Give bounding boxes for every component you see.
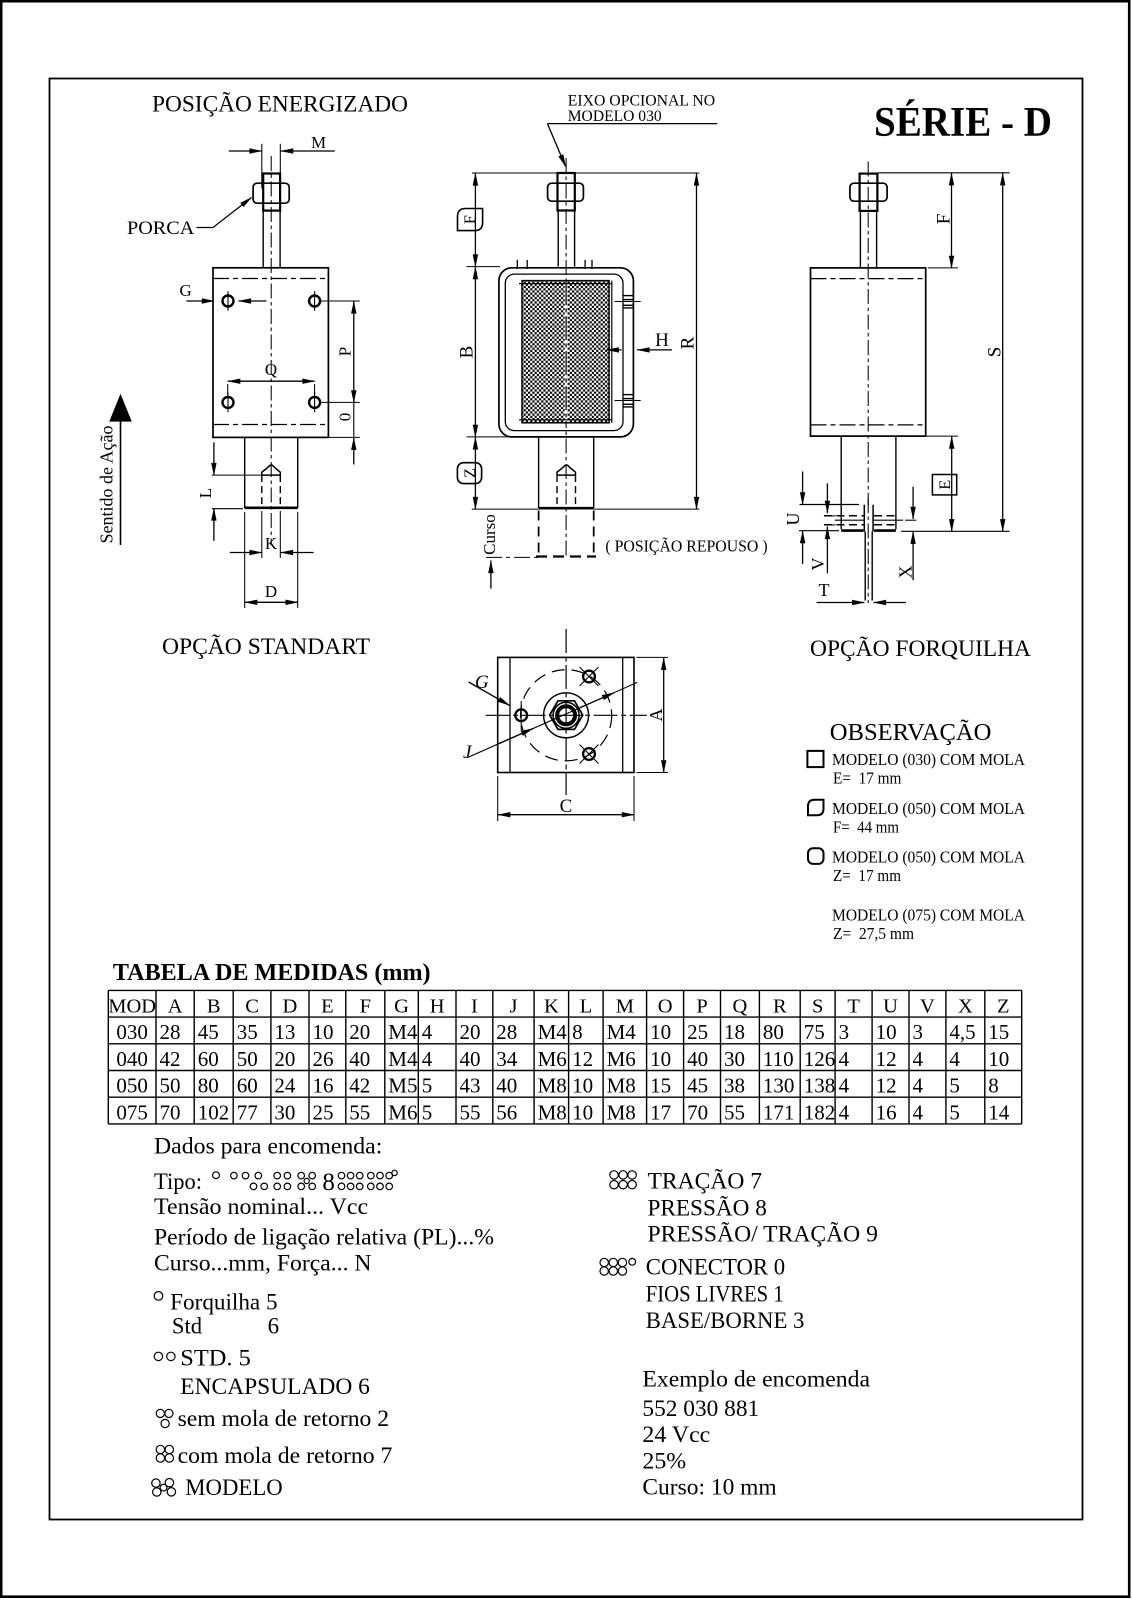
svg-text:12: 12	[572, 1047, 593, 1071]
svg-text:16: 16	[876, 1100, 897, 1124]
svg-text:34: 34	[496, 1047, 518, 1071]
svg-text:POSIÇÃO ENERGIZADO: POSIÇÃO ENERGIZADO	[152, 92, 408, 117]
svg-text:Sentido de Ação: Sentido de Ação	[97, 426, 117, 544]
svg-text:M8: M8	[607, 1100, 636, 1124]
svg-text:26: 26	[313, 1047, 334, 1071]
svg-text:X: X	[958, 995, 973, 1017]
svg-text:56: 56	[496, 1100, 517, 1124]
svg-text:L: L	[196, 488, 215, 498]
svg-text:16: 16	[313, 1074, 334, 1098]
svg-text:M6: M6	[538, 1047, 567, 1071]
svg-text:10: 10	[650, 1020, 671, 1044]
svg-text:4: 4	[913, 1100, 924, 1124]
svg-text:sem mola de retorno 2: sem mola de retorno 2	[178, 1406, 390, 1431]
svg-text:43: 43	[460, 1074, 481, 1098]
svg-text:K: K	[265, 534, 278, 553]
svg-text:M: M	[616, 995, 634, 1017]
svg-text:45: 45	[198, 1020, 219, 1044]
svg-text:38: 38	[724, 1074, 745, 1098]
svg-text:50: 50	[237, 1047, 258, 1071]
svg-text:10: 10	[572, 1074, 593, 1098]
svg-text:3: 3	[913, 1020, 924, 1044]
svg-text:25: 25	[313, 1100, 334, 1124]
svg-text:B: B	[456, 346, 477, 359]
svg-text:40: 40	[687, 1047, 708, 1071]
svg-text:30: 30	[274, 1100, 295, 1124]
svg-text:FIOS LIVRES 1: FIOS LIVRES 1	[646, 1281, 784, 1306]
svg-text:com mola de retorno 7: com mola de retorno 7	[178, 1443, 393, 1468]
svg-text:4: 4	[839, 1074, 850, 1098]
svg-text:F= 44 mm: F= 44 mm	[833, 817, 899, 836]
svg-text:75: 75	[804, 1020, 825, 1044]
svg-text:24: 24	[274, 1074, 296, 1098]
svg-text:MODELO: MODELO	[185, 1475, 282, 1500]
svg-text:4: 4	[422, 1047, 433, 1071]
svg-text:M6: M6	[607, 1047, 636, 1071]
svg-text:4: 4	[913, 1074, 924, 1098]
svg-text:70: 70	[160, 1100, 181, 1124]
svg-text:Q: Q	[733, 995, 748, 1017]
svg-text:B: B	[207, 995, 221, 1017]
svg-text:OPÇÃO STANDART: OPÇÃO STANDART	[162, 634, 370, 659]
svg-text:D: D	[265, 582, 277, 601]
svg-text:M4: M4	[538, 1020, 568, 1044]
svg-text:14: 14	[988, 1100, 1010, 1124]
svg-text:35: 35	[237, 1020, 258, 1044]
svg-text:13: 13	[274, 1020, 295, 1044]
svg-text:V: V	[920, 995, 935, 1017]
svg-text:OPÇÃO FORQUILHA: OPÇÃO FORQUILHA	[810, 636, 1031, 661]
svg-text:R: R	[773, 995, 787, 1017]
svg-text:H: H	[430, 995, 445, 1017]
svg-text:TRAÇÃO 7: TRAÇÃO 7	[648, 1168, 763, 1193]
svg-text:Dados para encomenda:: Dados para encomenda:	[154, 1134, 382, 1159]
svg-text:CONECTOR 0: CONECTOR 0	[646, 1255, 785, 1280]
svg-text:F: F	[462, 215, 479, 224]
svg-text:F: F	[360, 995, 371, 1017]
svg-text:040: 040	[116, 1047, 148, 1071]
svg-text:MODELO (050) COM MOLA: MODELO (050) COM MOLA	[832, 847, 1026, 866]
svg-text:40: 40	[349, 1047, 370, 1071]
svg-text:MODELO (030) COM MOLA: MODELO (030) COM MOLA	[832, 750, 1026, 769]
svg-text:H: H	[655, 330, 669, 351]
svg-text:M6: M6	[388, 1100, 417, 1124]
svg-text:K: K	[544, 995, 559, 1017]
svg-text:SÉRIE - D: SÉRIE - D	[874, 99, 1052, 146]
svg-text:R: R	[677, 336, 698, 349]
svg-text:5: 5	[422, 1100, 433, 1124]
svg-text:77: 77	[237, 1100, 258, 1124]
svg-text:ENCAPSULADO 6: ENCAPSULADO 6	[180, 1374, 370, 1399]
svg-text:55: 55	[460, 1100, 481, 1124]
svg-text:PORCA: PORCA	[127, 218, 195, 239]
svg-text:E: E	[937, 480, 954, 490]
svg-text:4: 4	[839, 1100, 850, 1124]
svg-text:EIXO OPCIONAL NO: EIXO OPCIONAL NO	[568, 92, 716, 109]
svg-text:80: 80	[198, 1074, 219, 1098]
svg-text:3: 3	[839, 1020, 850, 1044]
svg-text:4: 4	[949, 1047, 960, 1071]
svg-text:G: G	[394, 995, 409, 1017]
svg-text:12: 12	[876, 1047, 897, 1071]
svg-text:STD. 5: STD. 5	[180, 1346, 251, 1371]
svg-text:F: F	[933, 214, 954, 225]
svg-text:C: C	[560, 796, 573, 817]
svg-text:20: 20	[274, 1047, 295, 1071]
svg-text:M5: M5	[388, 1074, 417, 1098]
svg-text:TABELA DE MEDIDAS (mm): TABELA DE MEDIDAS (mm)	[113, 960, 431, 986]
svg-text:4: 4	[913, 1047, 924, 1071]
svg-text:60: 60	[198, 1047, 219, 1071]
svg-text:Z: Z	[997, 995, 1010, 1017]
svg-text:M8: M8	[538, 1100, 567, 1124]
svg-text:10: 10	[572, 1100, 593, 1124]
svg-text:18: 18	[724, 1020, 745, 1044]
svg-text:138: 138	[804, 1074, 836, 1098]
svg-text:8: 8	[322, 1169, 335, 1196]
svg-text:S: S	[812, 995, 823, 1017]
svg-text:8: 8	[572, 1020, 583, 1044]
svg-text:U: U	[883, 995, 898, 1017]
svg-text:T: T	[847, 995, 860, 1017]
svg-text:182: 182	[804, 1100, 836, 1124]
svg-text:70: 70	[687, 1100, 708, 1124]
svg-text:15: 15	[988, 1020, 1009, 1044]
svg-text:8: 8	[988, 1074, 999, 1098]
svg-text:Exemplo de encomenda: Exemplo de encomenda	[642, 1366, 870, 1391]
svg-text:80: 80	[763, 1020, 784, 1044]
svg-text:Período de ligação relativa (P: Período de ligação relativa (PL)...%	[154, 1224, 494, 1249]
svg-text:P: P	[336, 347, 355, 356]
svg-text:E: E	[321, 995, 334, 1017]
svg-text:0: 0	[336, 413, 355, 422]
svg-text:C: C	[245, 995, 259, 1017]
svg-text:030: 030	[116, 1020, 148, 1044]
svg-text:Curso...mm, Força... N: Curso...mm, Força... N	[154, 1251, 372, 1276]
svg-text:Forquilha 5: Forquilha 5	[170, 1290, 277, 1315]
svg-text:( POSIÇÃO REPOUSO ): ( POSIÇÃO REPOUSO )	[605, 537, 767, 556]
svg-text:PRESSÃO 8: PRESSÃO 8	[648, 1196, 767, 1221]
svg-text:D: D	[283, 995, 298, 1017]
svg-text:Tipo:: Tipo:	[154, 1169, 202, 1194]
svg-text:PRESSÃO/ TRAÇÃO 9: PRESSÃO/ TRAÇÃO 9	[648, 1221, 878, 1246]
svg-text:30: 30	[724, 1047, 745, 1071]
svg-text:110: 110	[763, 1047, 794, 1071]
svg-text:M8: M8	[538, 1074, 567, 1098]
svg-text:20: 20	[460, 1020, 481, 1044]
svg-text:G: G	[180, 281, 192, 300]
svg-text:E= 17 mm: E= 17 mm	[833, 769, 901, 788]
svg-text:25: 25	[687, 1020, 708, 1044]
svg-text:Curso: Curso	[480, 514, 499, 555]
svg-text:Tensão nominal... Vcc: Tensão nominal... Vcc	[154, 1194, 368, 1219]
svg-text:15: 15	[650, 1074, 671, 1098]
svg-text:T: T	[819, 580, 830, 600]
svg-text:40: 40	[496, 1074, 517, 1098]
svg-text:17: 17	[650, 1100, 671, 1124]
svg-text:4,5: 4,5	[949, 1020, 975, 1044]
svg-text:A: A	[646, 709, 666, 722]
svg-text:40: 40	[460, 1047, 481, 1071]
svg-text:I: I	[471, 995, 478, 1017]
svg-text:V: V	[808, 558, 828, 571]
svg-text:24 Vcc: 24 Vcc	[642, 1422, 710, 1447]
svg-text:126: 126	[804, 1047, 836, 1071]
svg-text:10: 10	[313, 1020, 334, 1044]
svg-text:5: 5	[422, 1074, 433, 1098]
svg-text:S: S	[984, 347, 1005, 358]
svg-text:42: 42	[349, 1074, 370, 1098]
svg-text:25%: 25%	[642, 1448, 686, 1473]
svg-text:OBSERVAÇÃO: OBSERVAÇÃO	[830, 720, 992, 746]
svg-text:42: 42	[160, 1047, 181, 1071]
svg-text:Std: Std	[172, 1314, 203, 1339]
svg-text:55: 55	[724, 1100, 745, 1124]
svg-text:28: 28	[496, 1020, 517, 1044]
svg-text:5: 5	[949, 1074, 960, 1098]
svg-text:102: 102	[198, 1100, 230, 1124]
svg-text:O: O	[658, 995, 673, 1017]
svg-text:X: X	[896, 566, 916, 579]
svg-text:MODELO (050) COM MOLA: MODELO (050) COM MOLA	[832, 799, 1026, 818]
svg-text:M8: M8	[607, 1074, 636, 1098]
svg-text:50: 50	[160, 1074, 181, 1098]
svg-text:10: 10	[988, 1047, 1009, 1071]
svg-text:Z= 17 mm: Z= 17 mm	[833, 866, 901, 885]
svg-text:4: 4	[422, 1020, 433, 1044]
svg-text:M4: M4	[388, 1047, 418, 1071]
svg-text:55: 55	[349, 1100, 370, 1124]
svg-text:MODELO (075) COM MOLA: MODELO (075) COM MOLA	[832, 906, 1026, 925]
svg-text:20: 20	[349, 1020, 370, 1044]
svg-text:MODELO 030: MODELO 030	[568, 108, 662, 125]
svg-text:130: 130	[763, 1074, 795, 1098]
svg-text:MOD: MOD	[108, 995, 156, 1017]
svg-text:12: 12	[876, 1074, 897, 1098]
svg-text:M4: M4	[388, 1020, 418, 1044]
svg-text:075: 075	[116, 1100, 148, 1124]
svg-text:050: 050	[116, 1074, 148, 1098]
svg-text:10: 10	[650, 1047, 671, 1071]
svg-text:5: 5	[949, 1100, 960, 1124]
svg-text:M: M	[311, 133, 326, 152]
svg-text:45: 45	[687, 1074, 708, 1098]
svg-text:Curso: 10 mm: Curso: 10 mm	[642, 1474, 776, 1499]
svg-text:J: J	[509, 995, 517, 1017]
svg-text:J: J	[463, 742, 473, 763]
svg-text:M4: M4	[607, 1020, 637, 1044]
svg-text:U: U	[783, 513, 803, 526]
svg-text:171: 171	[763, 1100, 795, 1124]
svg-text:552 030 881: 552 030 881	[642, 1396, 759, 1421]
svg-text:4: 4	[839, 1047, 850, 1071]
svg-text:Q: Q	[265, 360, 277, 379]
svg-text:60: 60	[237, 1074, 258, 1098]
svg-text:P: P	[696, 995, 707, 1017]
svg-text:6: 6	[268, 1314, 280, 1339]
svg-text:BASE/BORNE 3: BASE/BORNE 3	[646, 1308, 805, 1333]
svg-text:10: 10	[876, 1020, 897, 1044]
svg-text:Z= 27,5 mm: Z= 27,5 mm	[833, 924, 914, 943]
svg-text:A: A	[168, 995, 183, 1017]
svg-text:L: L	[580, 995, 593, 1017]
svg-text:28: 28	[160, 1020, 181, 1044]
svg-text:Z: Z	[462, 468, 479, 478]
